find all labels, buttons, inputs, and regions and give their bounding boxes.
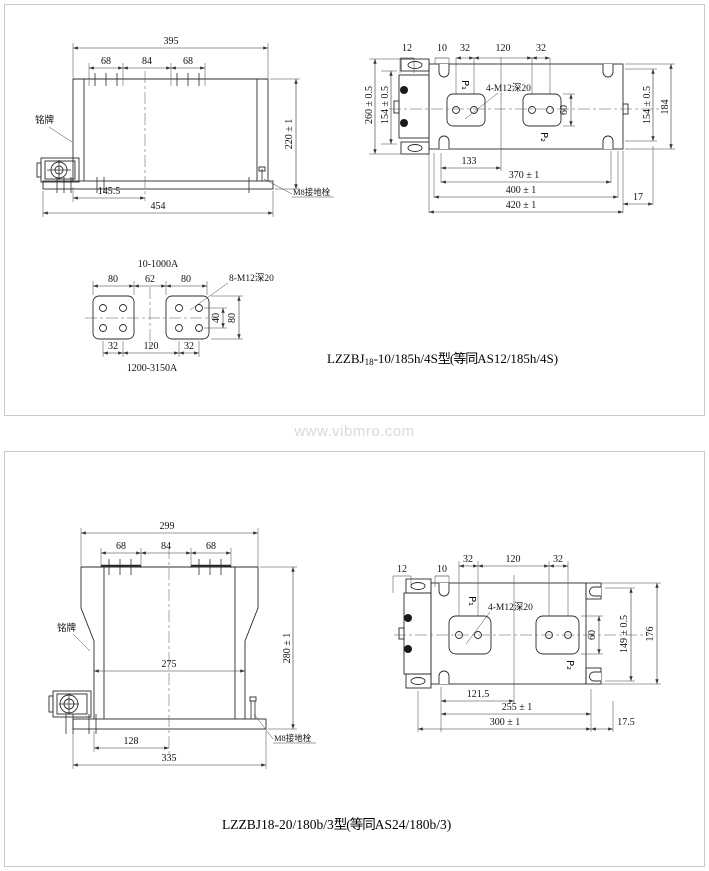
front-view-1-dim-lines [43, 48, 296, 213]
dim-68-left: 68 [101, 56, 111, 67]
dim-68-right: 68 [183, 56, 193, 67]
drawing-sheet-2: 299 68 84 68 280 ± 1 275 128 335 铭牌 M8接地… [5, 452, 704, 866]
dim-121-5: 121.5 [467, 689, 490, 700]
dim-454: 454 [151, 201, 166, 212]
dim-184: 184 [660, 100, 671, 115]
top-view-1-outline [394, 59, 628, 154]
dim-300: 300 ± 1 [490, 717, 521, 728]
front-view-2-outline [49, 567, 266, 729]
dim-154-left: 154 ± 0.5 [380, 86, 391, 124]
thread-label-4m12-2: 4-M12深20 [488, 602, 533, 613]
dim-60: 60 [559, 105, 570, 115]
ground-bolt-label: M8接地栓 [293, 187, 331, 197]
dim-32-b-2: 32 [553, 554, 563, 565]
front-view-2: 299 68 84 68 280 ± 1 275 128 335 铭牌 M8接地… [49, 521, 316, 769]
dim-335: 335 [162, 753, 177, 764]
caption1-prefix: LZZBJ [327, 351, 365, 366]
dim-128: 128 [124, 736, 139, 747]
dim-420: 420 ± 1 [506, 200, 537, 211]
front-view-1: 395 68 84 68 220 ± 1 145.5 454 铭牌 M8接地栓 [35, 36, 334, 217]
dim-400: 400 ± 1 [506, 185, 537, 196]
dim-120-2: 120 [506, 554, 521, 565]
dim-32-bottom-a: 32 [108, 341, 118, 352]
dim-80-a: 80 [108, 274, 118, 285]
dim-17-5: 17.5 [617, 717, 635, 728]
panel-bottom: 299 68 84 68 280 ± 1 275 128 335 铭牌 M8接地… [4, 451, 705, 867]
dim-68-left-2: 68 [116, 541, 126, 552]
dim-176: 176 [645, 627, 656, 642]
dim-40: 40 [211, 313, 222, 323]
dim-10-2: 10 [437, 564, 447, 575]
caption1-spec: -10/185h/4S [374, 351, 438, 366]
dim-154-right: 154 ± 0.5 [642, 86, 653, 124]
dim-32-b: 32 [536, 43, 546, 54]
terminal-detail: 10-1000A 80 62 80 8-M12深20 40 80 32 120 … [85, 259, 274, 374]
dim-17: 17 [633, 192, 643, 203]
dim-80-b: 80 [181, 274, 191, 285]
caption1-subscript: 18 [365, 357, 374, 367]
front-view-2-ticks [59, 559, 255, 734]
model-caption-1: LZZBJ18-10/185h/4S型(等同AS12/185h/4S) [327, 348, 558, 367]
dim-260: 260 ± 0.5 [364, 86, 375, 124]
nameplate-label-2: 铭牌 [57, 622, 77, 634]
dim-32-bottom-b: 32 [184, 341, 194, 352]
dim-120-bottom: 120 [144, 341, 159, 352]
terminal-p2-label: P₂ [538, 132, 549, 142]
dim-395: 395 [164, 36, 179, 47]
terminal-p1-label: P₁ [459, 80, 470, 90]
dim-68-right-2: 68 [206, 541, 216, 552]
front-view-2-dim-lines [73, 533, 293, 765]
thread-label-4m12: 4-M12深20 [486, 83, 531, 94]
top-view-2-outline [399, 579, 601, 688]
dim-145-5: 145.5 [98, 186, 121, 197]
dim-120: 120 [496, 43, 511, 54]
detail-title-current-range: 10-1000A [138, 259, 179, 270]
dim-32-a: 32 [460, 43, 470, 54]
dim-10: 10 [437, 43, 447, 54]
dim-275: 275 [162, 659, 177, 670]
dim-220: 220 ± 1 [284, 119, 295, 150]
nameplate-label: 铭牌 [35, 114, 55, 126]
ground-bolt-label-2: M8接地栓 [274, 733, 312, 743]
page: 395 68 84 68 220 ± 1 145.5 454 铭牌 M8接地栓 [0, 0, 709, 871]
caption2-prefix: LZZBJ18-20/180b/3 [222, 817, 334, 832]
caption1-cjk: 型(等同 [438, 351, 477, 366]
dim-370: 370 ± 1 [509, 170, 540, 181]
dim-84-2: 84 [161, 541, 171, 552]
caption1-equiv: AS12/185h/4S) [477, 351, 558, 366]
dim-84: 84 [142, 56, 152, 67]
front-view-1-outline [37, 79, 273, 189]
terminal-p2-label-2: P₂ [564, 660, 575, 670]
dim-299: 299 [160, 521, 175, 532]
dim-12-2: 12 [397, 564, 407, 575]
dim-60-2: 60 [587, 630, 598, 640]
dim-149: 149 ± 0.5 [619, 615, 630, 653]
terminal-p1-label-2: P₁ [466, 596, 477, 606]
dim-280: 280 ± 1 [282, 633, 293, 664]
model-caption-2: LZZBJ18-20/180b/3型(等同AS24/180b/3) [222, 813, 451, 833]
dim-12: 12 [402, 43, 412, 54]
dim-80-right: 80 [227, 313, 238, 323]
dim-32-a-2: 32 [463, 554, 473, 565]
terminal-detail-outline [93, 296, 209, 339]
watermark: www.vibmro.com [0, 423, 709, 440]
dim-133: 133 [462, 156, 477, 167]
caption2-equiv: AS24/180b/3) [375, 817, 452, 832]
dim-255: 255 ± 1 [502, 702, 533, 713]
thread-label-8m12: 8-M12深20 [229, 273, 274, 284]
detail-subtitle-current-range: 1200-3150A [127, 363, 178, 374]
caption2-cjk: 型(等同 [334, 817, 375, 832]
top-view-2: 12 10 32 120 32 P₁ P₂ 4-M12深20 60 149 ± … [393, 554, 661, 732]
top-view-1: 12 10 32 120 32 260 ± 0.5 154 ± 0.5 154 … [364, 43, 675, 213]
dim-62: 62 [145, 274, 155, 285]
